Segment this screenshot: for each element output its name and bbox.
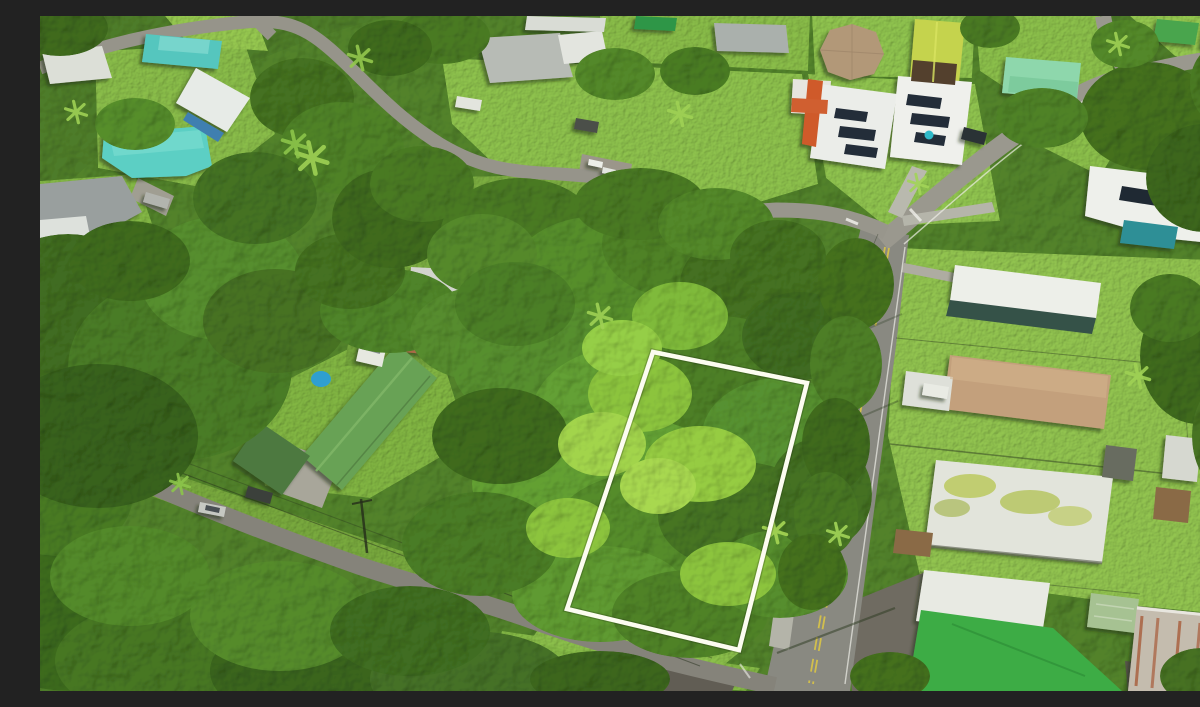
tree-blob: [660, 47, 730, 95]
tree-blob: [193, 152, 317, 244]
tree-blob: [620, 458, 696, 514]
tree-blob: [730, 220, 826, 292]
tree-blob: [818, 238, 894, 330]
tennis-court: [634, 16, 677, 31]
tree-blob: [810, 316, 882, 412]
garden-bed-b: [1153, 487, 1191, 523]
tree-blob: [330, 586, 490, 676]
tree-blob: [1091, 20, 1159, 68]
tree-blob: [432, 388, 568, 484]
tree-blob: [778, 534, 846, 610]
tree-blob: [996, 88, 1088, 148]
moss-patch-4: [934, 499, 970, 517]
tree-blob: [50, 526, 210, 626]
teal-umbrella: [925, 131, 934, 140]
garden-bed-a: [893, 529, 933, 557]
tree-blob: [575, 48, 655, 100]
tree-blob: [95, 98, 175, 150]
aerial-photo-figure: [40, 16, 1200, 691]
aerial-photo: [40, 16, 1200, 691]
moss-patch-1: [944, 474, 996, 498]
pale-green-shed: [1087, 593, 1139, 633]
moss-patch-2: [1000, 490, 1060, 514]
scene-root: [40, 16, 1200, 691]
moss-patch-3: [1048, 506, 1092, 526]
long-shed-top: [525, 16, 606, 32]
green-roof-ne: [1153, 19, 1199, 45]
orange-band: [791, 98, 828, 114]
gray-hip-house-b: [714, 23, 789, 53]
gray-hip-house-a: [478, 33, 573, 83]
tree-blob: [455, 262, 575, 346]
tree-blob: [70, 221, 190, 301]
dark-shed-mid: [1102, 445, 1137, 481]
solar-house-a: [810, 84, 897, 169]
blue-tarp: [311, 371, 331, 387]
